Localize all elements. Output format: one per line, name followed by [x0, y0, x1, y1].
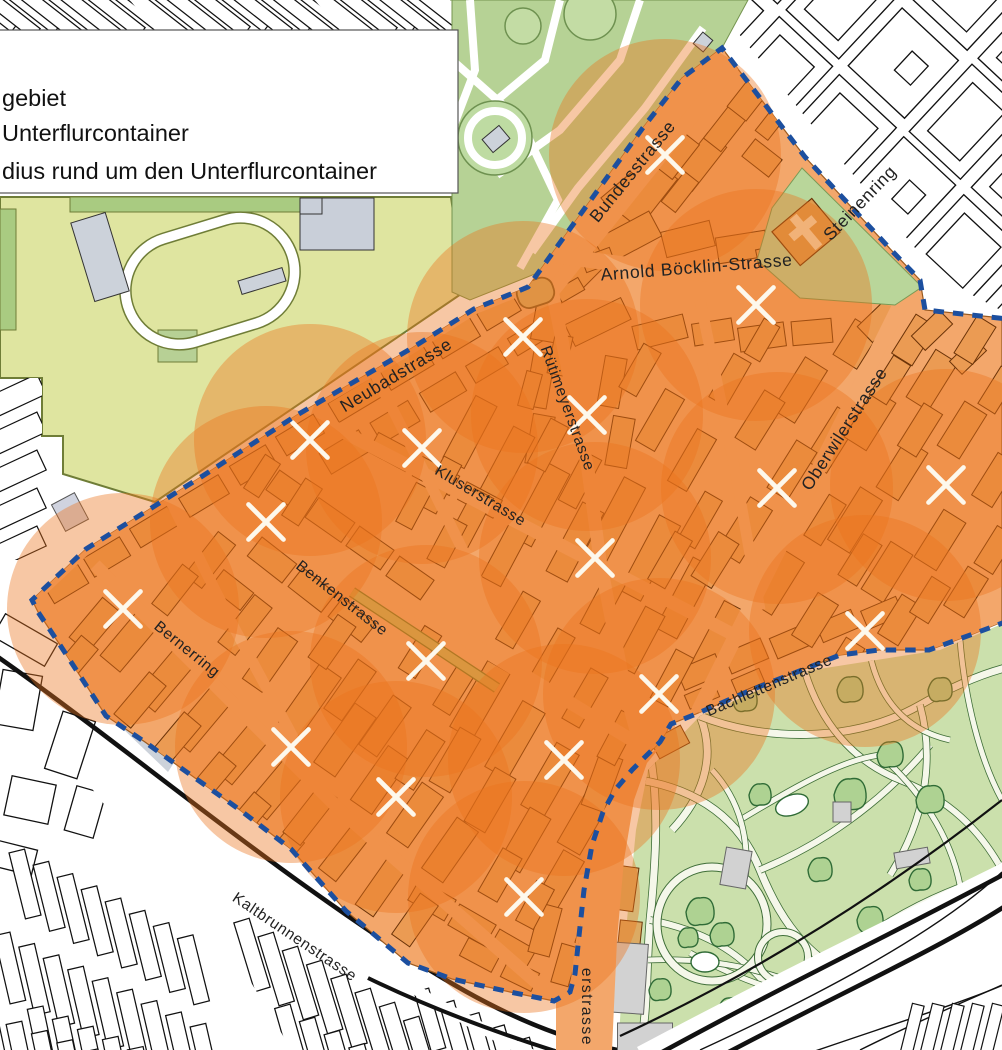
- svg-text:erstrasse: erstrasse: [578, 968, 595, 1046]
- svg-text:gebiet: gebiet: [2, 85, 66, 111]
- svg-text:Unterflurcontainer: Unterflurcontainer: [2, 120, 189, 146]
- svg-text:dius rund um den Unterflurcont: dius rund um den Unterflurcontainer: [2, 158, 377, 184]
